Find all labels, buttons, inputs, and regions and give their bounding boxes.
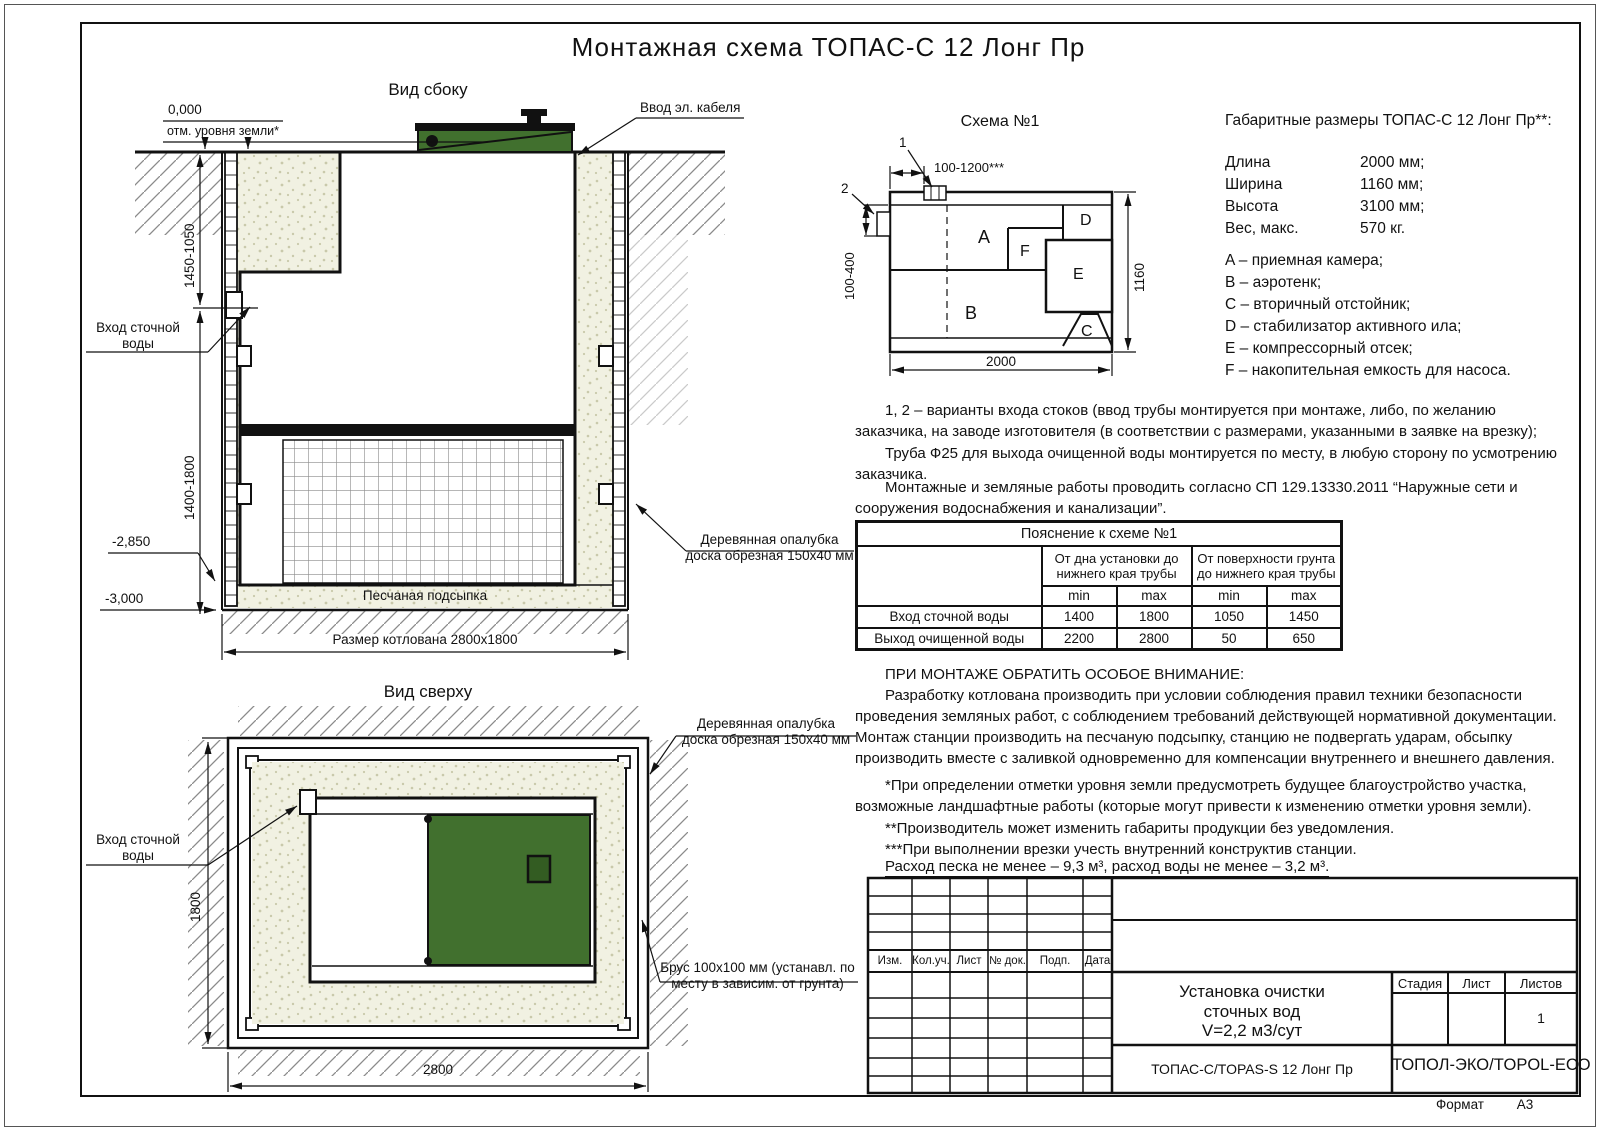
table-colgroup-1: От дна установки до нижнего края трубы: [1042, 546, 1192, 586]
stamp-sheets-header: Листов: [1505, 976, 1577, 992]
cell: 1800: [1117, 606, 1192, 628]
legend-item: C – вторичный отстойник;: [1225, 296, 1410, 315]
beam-label: Брус 100х100 мм (устанавл. по месту в за…: [655, 960, 860, 993]
schema-inlet-2: [877, 212, 890, 236]
cell: 2200: [1042, 628, 1117, 650]
dim-2800: 2800: [388, 1062, 488, 1078]
top-view-title: Вид сверху: [348, 682, 508, 703]
schema-title: Схема №1: [920, 112, 1080, 132]
specs-title: Габаритные размеры ТОПАС-С 12 Лонг Пр**:: [1225, 112, 1552, 131]
spec-value: 1160 мм;: [1360, 176, 1423, 195]
compartment-c-label: C: [1081, 322, 1093, 342]
footnote-1: *При определении отметки уровня земли пр…: [855, 775, 1565, 817]
schema-dim-left: 100-400: [842, 252, 858, 300]
stamp-sheets-value: 1: [1505, 1010, 1577, 1027]
row-label: Выход очищенной воды: [857, 628, 1042, 650]
stamp-sheet-header: Лист: [1448, 976, 1505, 992]
cell: 650: [1267, 628, 1342, 650]
side-view-title: Вид сбоку: [348, 80, 508, 101]
footnote-2: **Производитель может изменить габариты …: [855, 818, 1565, 839]
formwork-label-top: Деревянная опалубка доска обрезная 150х4…: [676, 716, 856, 749]
schema-drawing: [852, 150, 1136, 376]
table-min-header: min: [1192, 586, 1267, 606]
spec-value: 2000 мм;: [1360, 154, 1424, 173]
spec-value: 3100 мм;: [1360, 198, 1424, 217]
legend-item: D – стабилизатор активного ила;: [1225, 318, 1461, 337]
compartment-a-label: A: [978, 227, 990, 249]
elevation-zero-label: 0,000: [168, 102, 202, 118]
note-sp: Монтажные и земляные работы проводить со…: [855, 477, 1560, 519]
table-corner-cell: [857, 546, 1042, 606]
table-row: Вход сточной воды 1400 1800 1050 1450: [857, 606, 1342, 628]
sand-bedding-label: Песчаная подсыпка: [350, 588, 500, 604]
stamp-stage-header: Стадия: [1392, 976, 1448, 992]
compartment-d-label: D: [1080, 211, 1092, 231]
ground-hatch-right: [628, 153, 725, 235]
dim-1800: 1800: [188, 892, 204, 922]
rev-header-koluch: Кол.уч.: [912, 955, 950, 967]
legend-item: B – аэротенк;: [1225, 274, 1321, 293]
table-min-header: min: [1042, 586, 1117, 606]
spec-label: Вес, макс.: [1225, 220, 1299, 239]
attention-body: Разработку котлована производить при усл…: [855, 685, 1560, 769]
dim-depth-lower: 1400-1800: [182, 455, 198, 520]
spec-label: Ширина: [1225, 176, 1282, 195]
cell: 1450: [1267, 606, 1342, 628]
table-title: Пояснение к схеме №1: [857, 522, 1342, 546]
ground-hatch-left: [135, 153, 222, 235]
explanation-table: Пояснение к схеме №1 От дна установки до…: [855, 520, 1343, 651]
schema-dim-bottom: 2000: [951, 354, 1051, 370]
legend-item: F – накопительная емкость для насоса.: [1225, 362, 1511, 381]
side-view-drawing: [86, 109, 854, 660]
cell: 2800: [1117, 628, 1192, 650]
attention-title: ПРИ МОНТАЖЕ ОБРАТИТЬ ОСОБОЕ ВНИМАНИЕ:: [885, 664, 1244, 685]
dim-depth-upper: 1450-1050: [182, 223, 198, 288]
schema-callout-1: 1: [899, 135, 907, 151]
row-label: Вход сточной воды: [857, 606, 1042, 628]
station-partition: [240, 424, 575, 436]
rev-header-list: Лист: [950, 955, 988, 967]
compartment-b-label: B: [965, 303, 977, 325]
schema-callout-2: 2: [841, 181, 849, 197]
note-variants: 1, 2 – варианты входа стоков (ввод трубы…: [855, 400, 1560, 442]
legend-item: E – компрессорный отсек;: [1225, 340, 1413, 359]
formwork-label-side: Деревянная опалубка доска обрезная 150х4…: [682, 532, 857, 565]
consumption-note: Расход песка не менее – 9,3 м³, расход в…: [885, 858, 1329, 877]
table-max-header: max: [1267, 586, 1342, 606]
lid-vent-cap: [521, 109, 547, 116]
schema-inlet-1: [924, 186, 946, 200]
schema-dim-right: 1160: [1132, 263, 1148, 292]
rev-header-izm: Изм.: [868, 955, 912, 967]
rev-header-ndok: № док.: [988, 955, 1027, 967]
elevation-2850-label: -2,850: [112, 534, 150, 550]
sheet-title: Монтажная схема ТОПАС-С 12 Лонг Пр: [80, 32, 1577, 64]
ground-level-note: отм. уровня земли*: [167, 124, 279, 139]
stamp-project-title: Установка очистки сточных вод V=2,2 м3/с…: [1112, 982, 1392, 1041]
table-row: Выход очищенной воды 2200 2800 50 650: [857, 628, 1342, 650]
inlet-pipe-top: [300, 790, 316, 814]
format-label: Формат: [1420, 1097, 1500, 1113]
table-colgroup-2: От поверхности грунта до нижнего края тр…: [1192, 546, 1342, 586]
schema-dim-top: 100-1200***: [934, 160, 1004, 176]
spec-value: 570 кг.: [1360, 220, 1405, 239]
station-grid-block: [283, 440, 563, 583]
inlet-pipe-side: [226, 292, 242, 318]
cell: 50: [1192, 628, 1267, 650]
cell: 1050: [1192, 606, 1267, 628]
legend-item: A – приемная камера;: [1225, 252, 1383, 271]
station-lid-top: [428, 815, 590, 965]
pit-bottom-hatch: [222, 610, 628, 634]
inlet-label-side: Вход сточной воды: [68, 320, 208, 353]
spec-label: Высота: [1225, 198, 1278, 217]
stamp-model: ТОПАС-С/TOPAS-S 12 Лонг Пр: [1112, 1061, 1392, 1078]
elevation-3000-label: -3,000: [105, 591, 143, 607]
formwork-left: [225, 152, 237, 606]
compartment-f-label: F: [1020, 242, 1030, 262]
rev-header-data: Дата: [1083, 955, 1112, 967]
formwork-right: [613, 152, 625, 606]
cell: 1400: [1042, 606, 1117, 628]
format-value: А3: [1505, 1097, 1545, 1113]
table-max-header: max: [1117, 586, 1192, 606]
spec-label: Длина: [1225, 154, 1270, 173]
drawing-sheet: Монтажная схема ТОПАС-С 12 Лонг Пр Вид с…: [0, 0, 1600, 1131]
lid-hatch-top: [528, 856, 550, 882]
cable-entry-label: Ввод эл. кабеля: [640, 100, 740, 116]
inlet-label-top: Вход сточной воды: [68, 832, 208, 865]
compartment-e-label: E: [1073, 265, 1084, 285]
pit-size-label: Размер котлована 2800х1800: [310, 632, 540, 648]
stamp-company: ТОПОЛ-ЭКО/TOPOL-ECO: [1392, 1055, 1577, 1075]
rev-header-podp: Подп.: [1027, 955, 1083, 967]
